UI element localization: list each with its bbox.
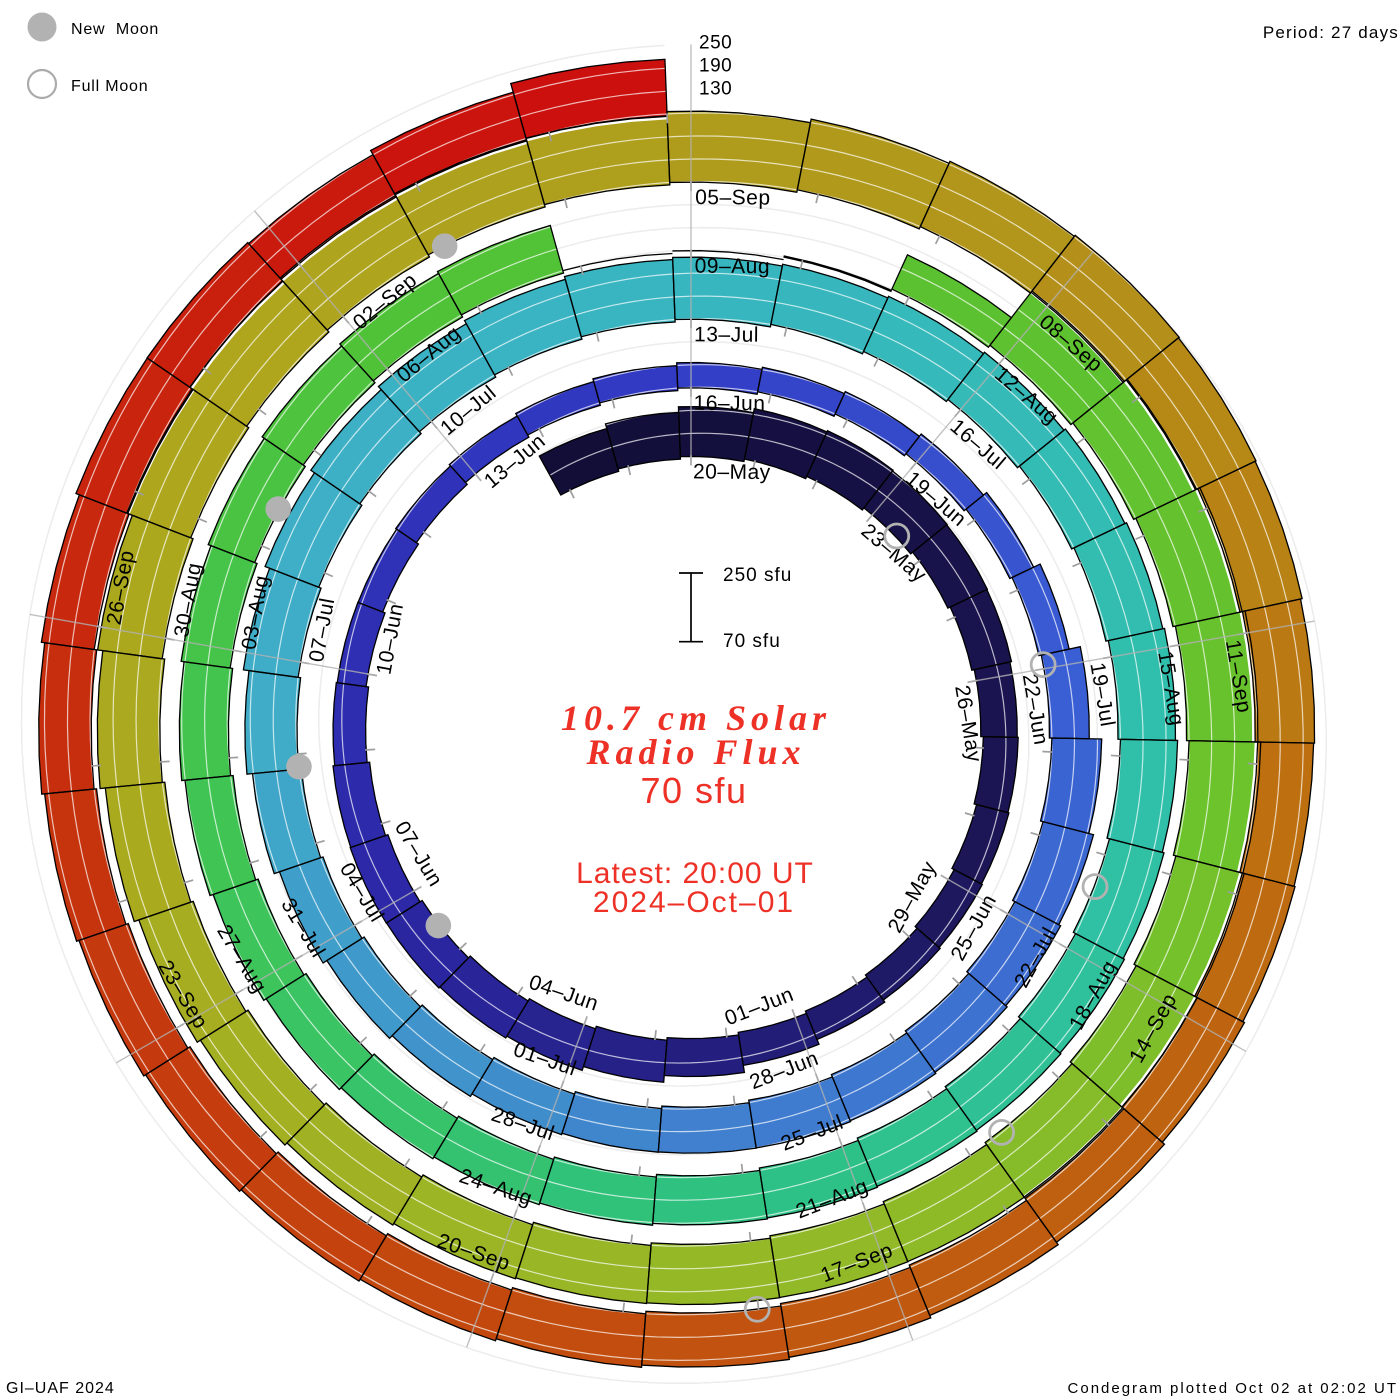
- svg-text:Full Moon: Full Moon: [71, 78, 148, 95]
- svg-text:New Moon: New Moon: [71, 21, 159, 38]
- svg-text:Radio Flux: Radio Flux: [585, 732, 805, 772]
- svg-text:09–Aug: 09–Aug: [695, 255, 771, 279]
- svg-text:250 sfu: 250 sfu: [723, 565, 792, 586]
- svg-text:130: 130: [699, 78, 732, 99]
- svg-text:190: 190: [699, 55, 732, 76]
- svg-text:Period: 27 days: Period: 27 days: [1263, 23, 1399, 42]
- svg-text:250: 250: [699, 32, 732, 53]
- svg-text:70 sfu: 70 sfu: [723, 631, 781, 652]
- svg-text:16–Jun: 16–Jun: [693, 392, 765, 416]
- svg-text:13–Jul: 13–Jul: [694, 323, 759, 347]
- svg-text:2024–Oct–01: 2024–Oct–01: [593, 886, 795, 919]
- svg-text:20–May: 20–May: [693, 460, 771, 484]
- svg-text:70 sfu: 70 sfu: [640, 770, 747, 811]
- svg-text:GI–UAF 2024: GI–UAF 2024: [6, 1380, 115, 1397]
- svg-text:Condegram plotted Oct 02 at 02: Condegram plotted Oct 02 at 02:02 UT: [1068, 1380, 1398, 1397]
- svg-text:05–Sep: 05–Sep: [695, 186, 771, 210]
